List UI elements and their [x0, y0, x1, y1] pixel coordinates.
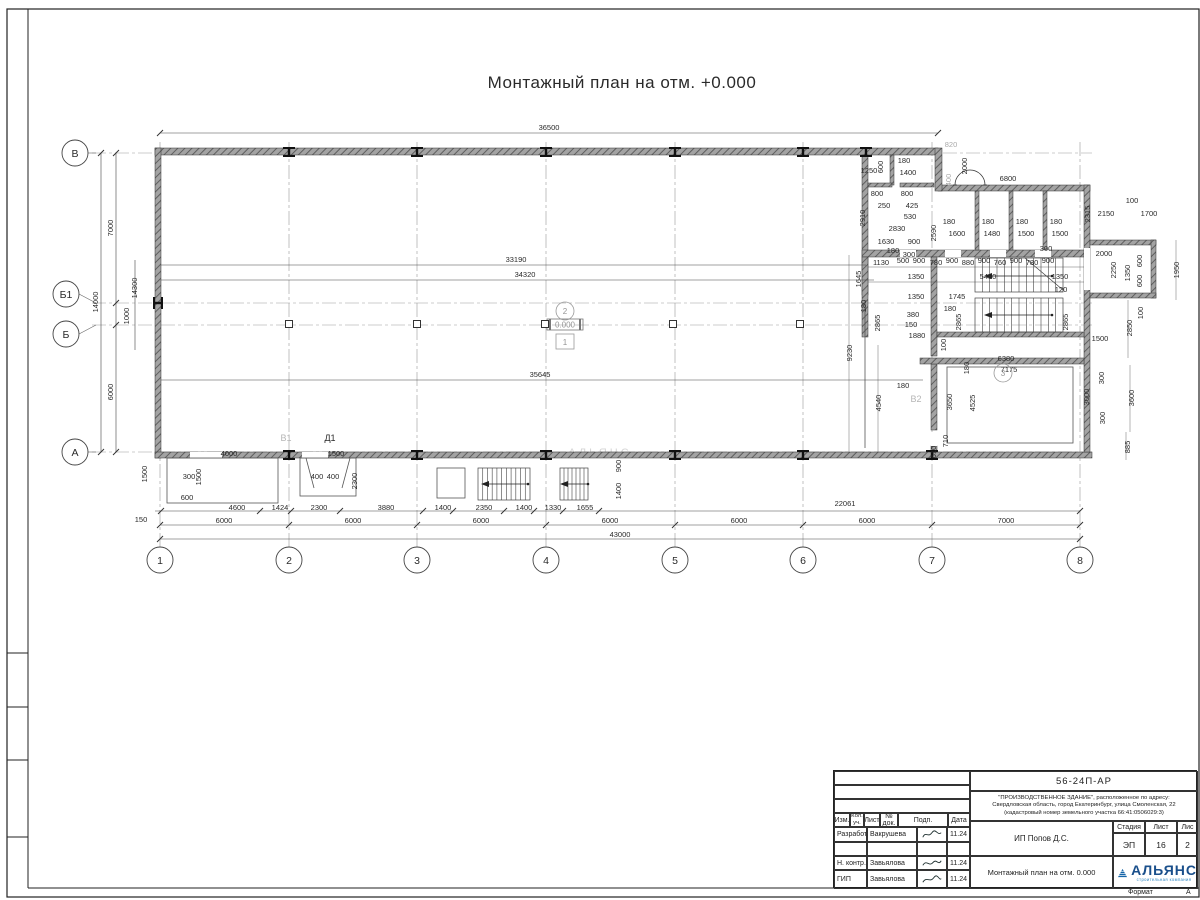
dimension-label: 500	[897, 256, 910, 265]
grid-bubble-label: 1	[157, 555, 163, 567]
title-block: Изм. Кол. уч. Лист № док. Подп. Дата Раз…	[833, 770, 1197, 888]
stair-direction-arrow	[481, 481, 489, 487]
dimension-label: 300	[1040, 244, 1053, 253]
square-post	[670, 321, 677, 328]
stair-direction-start	[1051, 314, 1054, 317]
tb-role: ГИП	[834, 870, 867, 889]
dimension-label: 180	[898, 156, 911, 165]
dimension-label: 400	[944, 174, 953, 187]
revision-row	[834, 771, 970, 785]
column-symbols	[153, 147, 938, 460]
dimension-label: 300	[1098, 412, 1107, 425]
dimension-label: 3880	[378, 503, 395, 512]
dimension-label: 6000	[345, 516, 362, 525]
tb-name: Вакрушева	[867, 827, 917, 842]
room-marker-label: 3	[1001, 369, 1006, 378]
dimension-label: 1350	[1052, 272, 1069, 281]
stair-direction-arrow	[984, 312, 992, 318]
dimension-label: 180	[1016, 217, 1029, 226]
dimension-label: 1350	[908, 272, 925, 281]
grid-bubbles: 12345678ВБ1БА	[53, 140, 1093, 573]
tb-project-line3: (кадастровый номер земельного участка 66…	[1004, 810, 1164, 817]
company-name: АЛЬЯНС	[1131, 863, 1197, 877]
dimension-label: 900	[946, 256, 959, 265]
i-beam-column	[288, 147, 290, 157]
dimension-label: 2300	[350, 473, 359, 490]
dimension-label: 380	[907, 310, 920, 319]
dimension-label: 4525	[968, 395, 977, 412]
dimension-label: 14300	[130, 278, 139, 299]
dimension-label: 1655	[577, 503, 594, 512]
dimension-label: 600	[181, 493, 194, 502]
dimension-label: 3600	[1127, 390, 1136, 407]
dimension-label: 530	[904, 212, 917, 221]
dimension-label: 2865	[873, 315, 882, 332]
tb-role: Н. контр.	[834, 856, 867, 870]
i-beam-column	[545, 450, 547, 460]
page-title: Монтажный план на отм. +0.000	[488, 73, 757, 92]
plan-label: В2	[910, 394, 921, 404]
dimension-label: 400	[311, 472, 324, 481]
dimension-label: 880	[962, 258, 975, 267]
dimension-label: 6000	[216, 516, 233, 525]
company-subtitle: строительная компания	[1131, 877, 1197, 882]
svg-text:0.000: 0.000	[555, 321, 576, 330]
tb-col-data: Дата	[948, 813, 970, 827]
tb-signature	[917, 827, 947, 842]
tb-sheet-label: Лист	[1145, 821, 1177, 833]
dimension-label: 180	[944, 304, 957, 313]
square-post	[414, 321, 421, 328]
dimension-label: 710	[941, 435, 950, 448]
tb-project-line1: "ПРОИЗВОДСТВЕННОЕ ЗДАНИЕ", расположенное…	[998, 795, 1169, 802]
dimension-label: 6380	[998, 354, 1015, 363]
dimension-label: 1424	[272, 503, 289, 512]
dimension-label: 150	[135, 515, 148, 524]
dimension-label: 9230	[845, 345, 854, 362]
dimension-label: 600	[1135, 255, 1144, 268]
dimension-label: 2865	[954, 314, 963, 331]
tb-role: Разработал	[834, 827, 867, 842]
dimension-label: 1880	[909, 331, 926, 340]
dimension-label: 1480	[984, 229, 1001, 238]
grid-bubble-label: А	[71, 447, 78, 459]
grid-bubble-label: 6	[800, 555, 806, 567]
dimension-label: 22061	[835, 499, 856, 508]
dimension-label: 800	[871, 189, 884, 198]
tb-date-empty	[947, 842, 970, 856]
dimension-label: 1745	[949, 292, 966, 301]
dimension-label: 6000	[731, 516, 748, 525]
dimension-label: 180	[887, 246, 900, 255]
dimension-label: 780	[930, 258, 943, 267]
dimension-label: 1600	[949, 229, 966, 238]
tb-doc-number: 56-24П-АР	[970, 771, 1198, 791]
stair-direction-start	[527, 483, 530, 486]
grid-bubble-label: 3	[414, 555, 420, 567]
grid-bubble-label: 7	[929, 555, 935, 567]
i-beam-column	[802, 450, 804, 460]
tb-project: "ПРОИЗВОДСТВЕННОЕ ЗДАНИЕ", расположенное…	[970, 791, 1198, 821]
dimension-label: 1500	[194, 469, 203, 486]
dimension-label: 885	[1123, 441, 1132, 454]
dimension-label: 2350	[476, 503, 493, 512]
dimension-label: 1500	[328, 449, 345, 458]
i-beam-column	[802, 147, 804, 157]
format-label: Формат	[1128, 889, 1153, 896]
dimension-label: 900	[614, 460, 623, 473]
dimension-label: 1500	[140, 466, 149, 483]
dimension-label: 33190	[506, 255, 527, 264]
dimension-label: 1500	[1052, 229, 1069, 238]
tb-sheets-label: Лис	[1177, 821, 1198, 833]
dimension-label: 35645	[530, 370, 551, 379]
tb-signature	[917, 870, 947, 889]
tb-sheets-value: 2	[1177, 833, 1198, 856]
tb-client: ИП Попов Д.С.	[970, 821, 1113, 856]
dimension-label: 36500	[539, 123, 560, 132]
elevation-marker: 0.000	[547, 319, 583, 330]
dimension-label: 600	[876, 161, 885, 174]
dimension-label: 6000	[859, 516, 876, 525]
tb-date: 11.24	[947, 827, 970, 842]
dimension-label: 1400	[516, 503, 533, 512]
stairs	[478, 258, 1063, 500]
dimension-label: 4540	[874, 395, 883, 412]
dimension-label: 900	[908, 237, 921, 246]
dimension-label: 300	[1097, 372, 1106, 385]
dimension-label: 3650	[945, 394, 954, 411]
dimension-label: 780	[1026, 258, 1039, 267]
dimension-label: 180	[962, 362, 971, 375]
dimension-label: 2300	[311, 503, 328, 512]
i-beam-column	[545, 147, 547, 157]
tb-col-ndok: № док.	[880, 813, 898, 827]
dimension-label: 150	[905, 320, 918, 329]
dimension-label: 180	[1050, 217, 1063, 226]
dimension-label: 6000	[473, 516, 490, 525]
logo-triangle-icon	[1118, 863, 1127, 883]
grid-bubble-label: 5	[672, 555, 678, 567]
tb-sig-empty	[917, 842, 947, 856]
dimension-label: 1400	[435, 503, 452, 512]
dimension-label: 610	[929, 446, 938, 459]
tb-stage-value: ЭП	[1113, 833, 1145, 856]
plan-label: В1	[280, 433, 291, 443]
dimension-label: 180	[943, 217, 956, 226]
dimension-label: 34320	[515, 270, 536, 279]
plan-labels: Д1В1В2	[280, 394, 921, 443]
stair-direction-start	[587, 483, 590, 486]
dimension-label: 7000	[106, 220, 115, 237]
dimension-label: 180	[897, 381, 910, 390]
dimension-label: 800	[901, 189, 914, 198]
dimension-label: 1000	[122, 308, 131, 325]
dimension-label: 2865	[1061, 314, 1070, 331]
dimension-label: 2590	[929, 225, 938, 242]
tb-date: 11.24	[947, 856, 970, 870]
grid-bubble-leader	[79, 325, 96, 334]
door-openings	[190, 248, 1090, 458]
dimension-label: 1700	[1141, 209, 1158, 218]
dimension-label: 100	[1136, 307, 1145, 320]
dimension-label: 425	[906, 201, 919, 210]
dimension-label: 1500	[1092, 334, 1109, 343]
dimension-label: 1250	[861, 166, 878, 175]
dimension-label: 43000	[610, 530, 631, 539]
tb-role-empty	[834, 842, 867, 856]
dimension-label: 600	[1135, 275, 1144, 288]
tb-project-line2: Свердловская область, город Екатеринбург…	[992, 802, 1175, 809]
dimension-label: 2150	[1098, 209, 1115, 218]
dimension-label: 100	[1126, 196, 1139, 205]
drawing-sheet: Монтажный план на отм. +0.000 АЛЬЯНС	[0, 0, 1200, 900]
dimension-label: 100	[939, 339, 948, 352]
grid-bubble-label: Б1	[60, 289, 73, 301]
tb-name-empty	[867, 842, 917, 856]
dimension-label: 1950	[1172, 262, 1181, 279]
dimension-label: 900	[1010, 256, 1023, 265]
dimension-label: 1130	[873, 258, 889, 267]
dimension-label: 180	[982, 217, 995, 226]
tb-col-podp: Подп.	[898, 813, 948, 827]
tb-drawing-title: Монтажный план на отм. 0.000	[970, 856, 1113, 889]
dimension-label: 900	[913, 256, 926, 265]
grid-bubble-label: 2	[286, 555, 292, 567]
i-beam-column	[416, 450, 418, 460]
dimension-label: 2250	[1109, 262, 1118, 279]
dimension-label: 2315	[1083, 206, 1092, 223]
i-beam-column	[865, 147, 867, 157]
dimension-label: 6000	[602, 516, 619, 525]
dimension-label: 1500	[1018, 229, 1035, 238]
tb-name: Завьялова	[867, 856, 917, 870]
floor-plan-canvas: Монтажный план на отм. +0.000 АЛЬЯНС	[0, 0, 1200, 900]
dimension-label: 6800	[1000, 174, 1017, 183]
dimension-label: 6000	[106, 384, 115, 401]
revision-row	[834, 799, 970, 813]
tb-sheet-value: 16	[1145, 833, 1177, 856]
dimension-label: 1350	[908, 292, 925, 301]
tb-date: 11.24	[947, 870, 970, 889]
company-logo: АЛЬЯНС строительная компания	[1113, 856, 1198, 889]
dimension-label: 2850	[1125, 320, 1134, 337]
dimension-label: 1350	[1123, 265, 1132, 282]
square-post	[542, 321, 549, 328]
room-marker-label: 2	[563, 307, 568, 316]
grid-bubble-label: Б	[63, 329, 70, 341]
dimension-label: 900	[978, 256, 991, 265]
tb-col-izm: Изм.	[834, 813, 850, 827]
dimension-label: 7000	[998, 516, 1015, 525]
i-beam-column	[288, 450, 290, 460]
dimension-label: 14000	[91, 292, 100, 313]
tb-name: Завьялова	[867, 870, 917, 889]
grid-bubble-label: В	[71, 148, 78, 160]
dimension-label: 4600	[229, 503, 246, 512]
dimension-label: 760	[994, 258, 1007, 267]
grid-bubble-label: 4	[543, 555, 549, 567]
dimension-label: 400	[327, 472, 340, 481]
i-beam-column	[674, 147, 676, 157]
dimension-label: 1645	[854, 271, 863, 288]
tb-signature	[917, 856, 947, 870]
i-beam-column	[674, 450, 676, 460]
square-post	[286, 321, 293, 328]
dimension-label: 2830	[889, 224, 906, 233]
dimension-label: 820	[945, 140, 958, 149]
dimension-label: 1330	[545, 503, 562, 512]
square-post	[797, 321, 804, 328]
format-value: А	[1186, 889, 1191, 896]
tb-col-list: Лист	[864, 813, 880, 827]
room-marker-label: 1	[563, 338, 568, 347]
tb-stage-label: Стадия	[1113, 821, 1145, 833]
dimension-label: 5480	[980, 272, 997, 281]
dimension-label: 250	[878, 201, 891, 210]
dimension-label: 180	[859, 300, 868, 313]
i-beam-column	[416, 147, 418, 157]
dimension-label: 120	[1055, 285, 1068, 294]
grid-bubble-label: 8	[1077, 555, 1083, 567]
dimension-label: 1400	[900, 168, 917, 177]
dimension-label: 2000	[1096, 249, 1113, 258]
dimension-label: 1630	[878, 237, 895, 246]
plan-label: Д1	[324, 433, 335, 443]
dimension-label: 4000	[221, 449, 238, 458]
dimension-label: 2000	[960, 158, 969, 175]
dimension-label: 900	[1042, 256, 1055, 265]
dimension-label: 3000	[1082, 389, 1091, 406]
dimension-label: 1400	[614, 483, 623, 500]
i-beam-column	[153, 302, 163, 304]
dimension-label: 2910	[858, 210, 867, 227]
revision-row	[834, 785, 970, 799]
tb-col-koluch: Кол. уч.	[850, 813, 864, 827]
